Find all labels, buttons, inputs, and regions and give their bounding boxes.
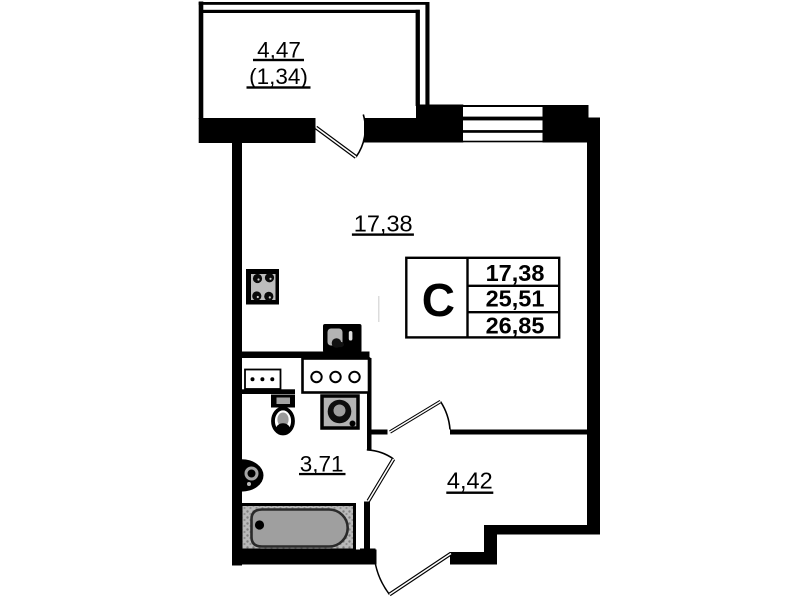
svg-text:C: C bbox=[422, 274, 455, 326]
svg-text:4,47: 4,47 bbox=[257, 38, 301, 63]
svg-text:3,71: 3,71 bbox=[300, 452, 344, 477]
svg-text:4,42: 4,42 bbox=[447, 468, 493, 494]
svg-text:26,85: 26,85 bbox=[486, 313, 545, 339]
svg-text:17,38: 17,38 bbox=[486, 260, 545, 286]
svg-text:(1,34): (1,34) bbox=[249, 64, 308, 89]
svg-text:17,38: 17,38 bbox=[354, 211, 413, 237]
svg-text:25,51: 25,51 bbox=[486, 286, 545, 312]
